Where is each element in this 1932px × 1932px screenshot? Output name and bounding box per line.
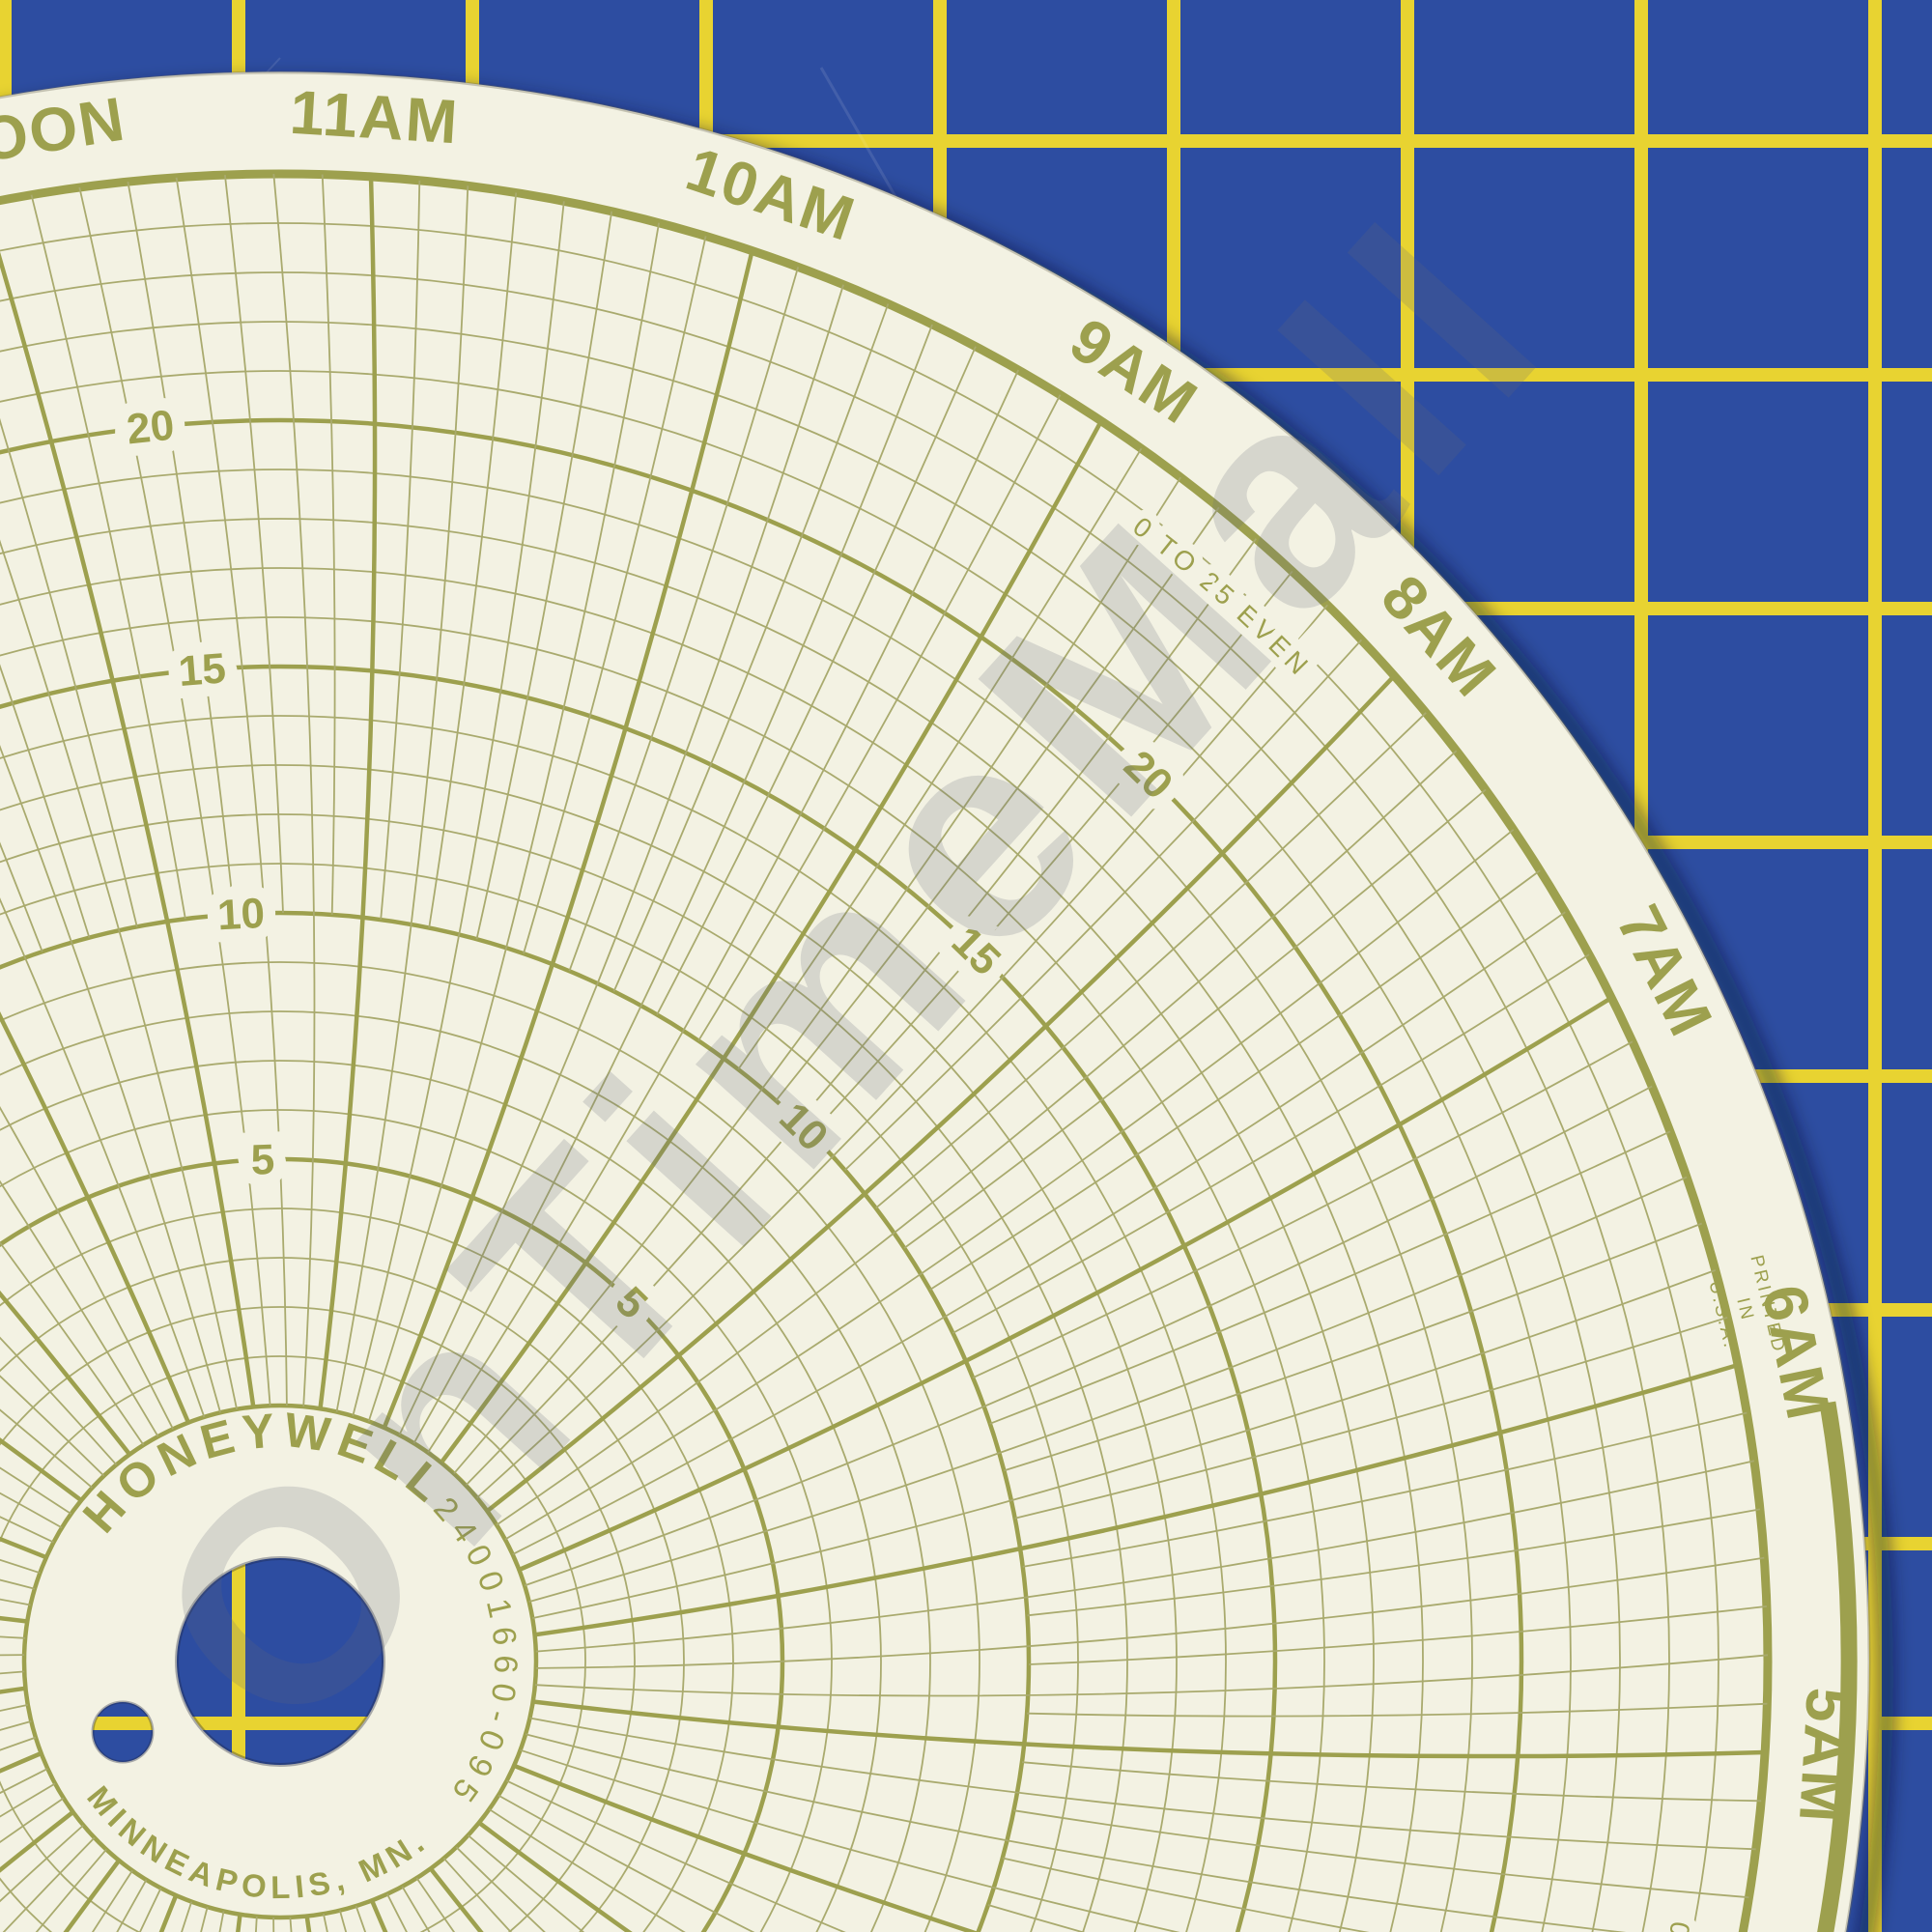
chart-paper-scene: NOON 11AM 10AM 9AM 8AM 7AM 6AM 5AM 20 15… xyxy=(0,0,1932,1932)
hour-label-5am: 5AM xyxy=(1786,1686,1863,1826)
scale-label-5: 5 xyxy=(250,1136,275,1184)
hour-label-11am: 11AM xyxy=(288,77,461,157)
product-photo: NOON 11AM 10AM 9AM 8AM 7AM 6AM 5AM 20 15… xyxy=(0,0,1932,1932)
scale-label-15: 15 xyxy=(177,644,228,696)
scale-label-10: 10 xyxy=(216,890,266,939)
scale-label-20: 20 xyxy=(125,402,177,454)
